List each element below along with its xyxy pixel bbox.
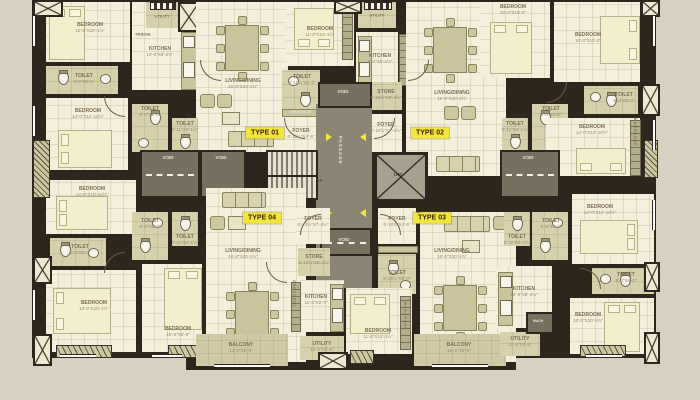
chair	[468, 46, 477, 55]
room-label: UTILITY11'-0"X3'-6"	[508, 336, 531, 348]
chair	[468, 28, 477, 37]
room-label: TOILET5'-0"X8'-0"	[74, 73, 95, 85]
type-02-label: TYPE 02	[411, 128, 449, 139]
room-label: KITCHEN10'-0"X8'-0½"	[510, 286, 537, 298]
room-label: BEDROOM14'-0"X11'-10½"	[72, 108, 104, 120]
room-label: TOILET5'-11"X4'-1½"	[502, 121, 529, 133]
room-label: KITCHEN11'-0"X8'-0"	[304, 294, 327, 306]
lift-label: LIFT	[394, 172, 402, 177]
room-label: SHOE RACK	[290, 110, 311, 114]
chair	[238, 16, 247, 25]
room-label: TOILET5'-0"X8'-0"	[140, 106, 161, 118]
room-label: TOILET5'-0"X8'-0"	[614, 92, 635, 104]
bed	[600, 16, 640, 64]
bed	[580, 220, 638, 254]
washbasin	[138, 138, 149, 148]
armchair	[217, 94, 232, 108]
void-label: VOID	[162, 155, 173, 161]
room-label: UTILITY11'-0"X3'-6"	[310, 341, 333, 353]
room-label: BEDROOM10'-0"X10'-1½"	[573, 312, 603, 324]
dining-set	[216, 16, 268, 80]
duct-x	[334, 0, 362, 14]
room-label: WASH	[533, 319, 544, 323]
window	[432, 364, 488, 368]
room-label: FOYER6'-10½"X7'-4½"	[298, 216, 329, 228]
duct-x	[644, 262, 660, 292]
room-label: LIVING/DINING16'-0"X20'-2½"	[225, 248, 261, 260]
room-label: FOYER6'-10½"X4'-6"	[287, 128, 314, 140]
duct-x	[33, 0, 63, 17]
chair	[468, 64, 477, 73]
room-label: WARDROBE	[633, 118, 637, 147]
sofa	[436, 156, 480, 172]
chair	[478, 304, 487, 313]
armchair	[210, 216, 225, 230]
void-label: VOID	[215, 155, 226, 161]
room-label: BALCONY14'-0"X5'-0"	[447, 342, 472, 354]
passage-label: PASSAGE	[337, 120, 343, 180]
washbasin	[100, 74, 111, 84]
window	[152, 354, 182, 358]
room-label: TOILET5'-0"X8'-0"	[541, 218, 562, 230]
room-label: UTILITY	[369, 13, 384, 18]
room-label: BEDROOM14'-0"X10'-10½"	[576, 124, 608, 136]
window	[32, 106, 36, 136]
void-label: VOID	[337, 89, 348, 95]
room-label: TOILET5'-11"X4'-1½"	[172, 234, 199, 246]
duct-x	[318, 352, 348, 370]
chair	[260, 62, 269, 71]
window	[60, 354, 96, 358]
utility-shelf	[364, 2, 392, 10]
entry-arrow-icon	[356, 133, 366, 141]
dining-set	[424, 18, 476, 82]
chair	[424, 46, 433, 55]
chair	[424, 28, 433, 37]
room-label: KITCHEN9'-0"X8'-2½"	[368, 53, 393, 65]
chair	[226, 310, 235, 319]
coffee-table	[222, 112, 240, 125]
armchair	[200, 94, 215, 108]
entry-arrow-icon	[356, 209, 366, 217]
room-label: TOILET5'-0"X8'-0"	[616, 272, 637, 284]
lift	[374, 152, 428, 202]
window	[32, 290, 36, 320]
room-label: BEDROOM11'-0"X13'-1½"	[305, 26, 334, 38]
window	[652, 16, 656, 46]
chair	[226, 292, 235, 301]
void-label: VOID	[338, 237, 349, 243]
duct-x	[641, 84, 660, 116]
chair	[446, 74, 455, 83]
sink	[332, 288, 343, 300]
chair	[478, 322, 487, 331]
wardrobe-strip	[342, 6, 353, 60]
window	[214, 364, 270, 368]
room-label: STORE6'-10½"X5'-4½"	[371, 89, 402, 101]
hatch-sitout	[350, 350, 374, 364]
chair	[478, 286, 487, 295]
chair	[434, 304, 443, 313]
void-label: VOID	[522, 155, 533, 161]
hatch-edge	[33, 140, 50, 198]
room-label: BEDROOM10'-0"X8'-0"	[165, 326, 191, 338]
utility-shelf	[150, 2, 176, 10]
duct-x	[644, 332, 660, 364]
chair	[216, 26, 225, 35]
room-label: BEDROOM14'-0"X10'-10½"	[76, 186, 108, 198]
sink	[183, 36, 195, 48]
chair	[456, 276, 465, 285]
room-label: BALCONY14'-0"X5'-0"	[229, 342, 254, 354]
room-label: WARDROBE	[403, 302, 407, 331]
washbasin	[590, 92, 601, 102]
window	[652, 200, 656, 230]
room-label: LIVING/DINING16'-0"X20'-2½"	[434, 90, 470, 102]
chair	[260, 44, 269, 53]
duct-x	[641, 0, 660, 17]
up-label: UP	[316, 178, 324, 183]
room-label: FRIDGE	[135, 32, 150, 37]
washbasin	[600, 274, 611, 284]
floor-plan: PASSAGE UP LIFT VOID VOID VOID VOID VOID…	[0, 0, 700, 400]
chair	[248, 282, 257, 291]
armchair	[461, 106, 476, 120]
stove	[332, 308, 343, 323]
room-label: TOILET5'-0"X8'-0"	[70, 244, 91, 256]
room-label: FOYER6'-10½"X4'-6"	[383, 216, 410, 228]
window	[32, 16, 36, 46]
chair	[216, 44, 225, 53]
chair	[270, 310, 279, 319]
stove	[183, 62, 195, 78]
armchair	[444, 106, 459, 120]
room-label: TOILET5'-0"X8'-0"	[541, 106, 562, 118]
dining-set	[434, 276, 486, 340]
room-label: BEDROOM10'-0"X10'-0"	[500, 4, 526, 16]
room-label: TOILET6'-10½"X5'-0"	[288, 74, 315, 86]
stove	[500, 300, 512, 316]
bed	[56, 196, 108, 230]
bed	[576, 148, 626, 174]
room-label: TOILET5'-11"X4'-1½"	[172, 121, 199, 133]
room-label: UTILITY	[154, 14, 169, 19]
room-label: BEDROOM11'-0"X13'-1½"	[363, 328, 392, 340]
chair	[260, 26, 269, 35]
room-label: BEDROOM10'-0"X10'-1½"	[75, 22, 105, 34]
bed	[58, 130, 112, 168]
chair	[446, 18, 455, 27]
room-label: TOILET6'-10½"X5'-0"	[383, 270, 410, 282]
room-label: LIVING/DINING16'-0"X20'-2½"	[434, 248, 470, 260]
chair	[434, 286, 443, 295]
bed	[490, 22, 532, 74]
room-label: KITCHEN10'-0"X8'-2½"	[146, 46, 173, 58]
sofa	[222, 192, 266, 208]
room-label: FOYER6'-10½"X7'-4½"	[371, 122, 402, 134]
duct-x	[33, 256, 52, 284]
bed	[164, 268, 202, 330]
entry-arrow-icon	[326, 133, 336, 141]
room-label: BEDROOM10'-0"X13'-0"	[575, 32, 601, 44]
type-01-label: TYPE 01	[246, 128, 284, 139]
room-label: BEDROOM14'-0"X10'-1½"	[79, 300, 109, 312]
duct-x	[33, 334, 52, 366]
type-03-label: TYPE 03	[413, 213, 451, 224]
window	[652, 120, 656, 150]
window	[586, 354, 622, 358]
void-box	[318, 82, 372, 108]
chair	[270, 292, 279, 301]
room-label: TOILET5'-0"X8'-0"	[140, 218, 161, 230]
room-label: STORE6'-10½"X5'-4½"	[299, 254, 330, 266]
type-04-label: TYPE 04	[243, 213, 281, 224]
sink	[359, 40, 370, 52]
room-label: CROCKERY	[292, 280, 296, 308]
room-label: LIVING/DINING16'-0"X20'-2½"	[225, 78, 261, 90]
chair	[434, 322, 443, 331]
room-label: BEDROOM14'-0"X10'-10½"	[584, 204, 616, 216]
room-label: TOILET5'-11"X4'-1½"	[504, 234, 531, 246]
shoe-rack	[378, 246, 418, 253]
